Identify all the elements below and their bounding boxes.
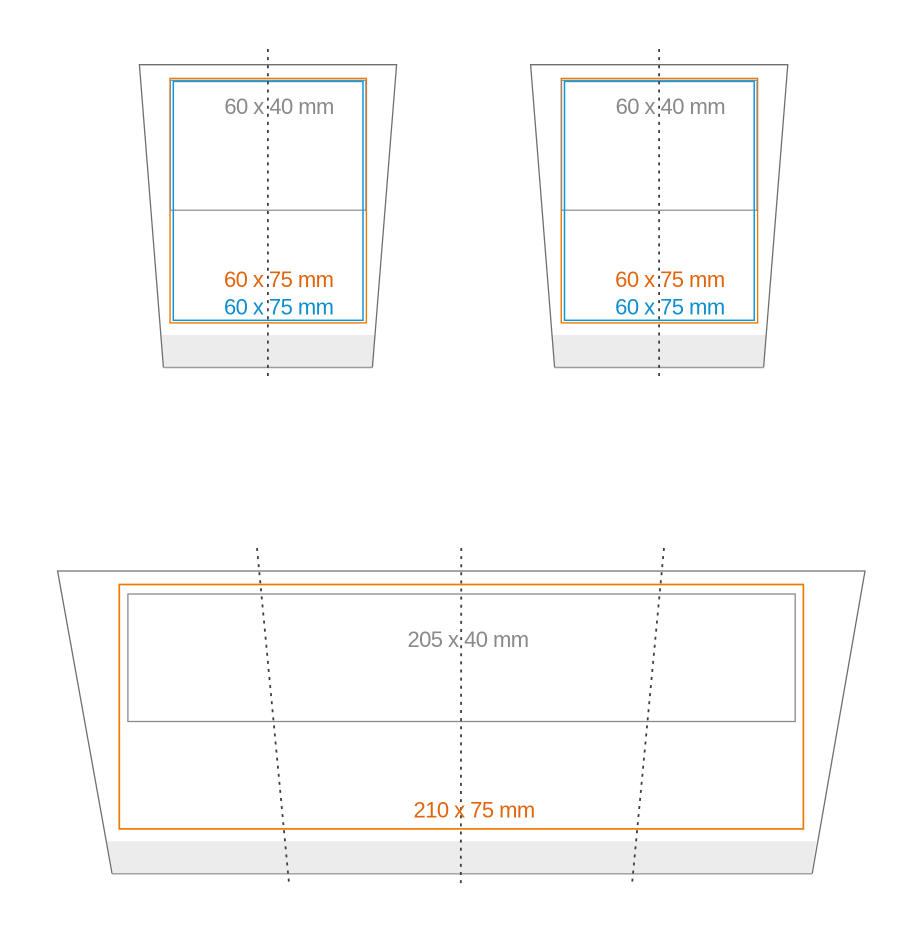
svg-text:60 x 75 mm: 60 x 75 mm (224, 295, 333, 320)
svg-text:60 x 75 mm: 60 x 75 mm (224, 267, 333, 292)
svg-text:60 x 40 mm: 60 x 40 mm (224, 94, 333, 119)
svg-text:205 x 40 mm: 205 x 40 mm (407, 627, 528, 652)
svg-text:210 x 75 mm: 210 x 75 mm (414, 798, 535, 823)
